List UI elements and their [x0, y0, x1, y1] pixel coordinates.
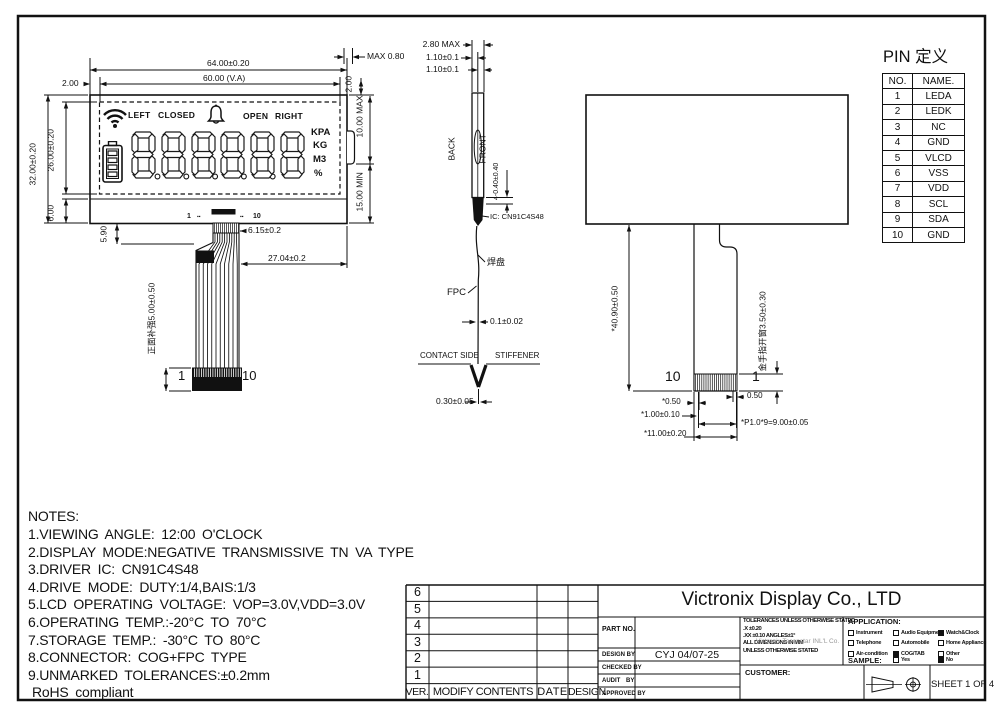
note-line: 6.OPERATING TEMP.:-20°C TO 70°C	[28, 615, 266, 629]
dim-front-fpc-offset: 27.04±0.2	[268, 254, 306, 263]
dim-front-left-offset: 2.00	[62, 79, 79, 88]
rev-header-date: DATE	[537, 687, 568, 698]
table-row: 5VLCD	[883, 150, 965, 165]
sheet-number: SHEET 1 OF 4	[931, 680, 985, 690]
checkbox-icon	[848, 630, 854, 636]
lcd-unit-kpa: KPA	[311, 128, 330, 138]
dim-front-va-height: 26.00±0.20	[47, 129, 56, 171]
back-pin1: 1	[752, 369, 760, 383]
pin-no: 3	[883, 120, 913, 135]
table-row: 9SDA	[883, 212, 965, 227]
pin-name: SDA	[913, 212, 965, 227]
checked-by-label: CHECKED BY	[602, 665, 642, 671]
lcd-unit-m3: M3	[313, 155, 326, 165]
seven-segment-digit	[220, 131, 245, 179]
checkbox-icon	[938, 630, 944, 636]
pin-name: LEDA	[913, 89, 965, 104]
pin-no: 6	[883, 166, 913, 181]
seven-segment-digit	[191, 131, 216, 179]
note-line: 2.DISPLAY MODE:NEGATIVE TRANSMISSIVE TN …	[28, 545, 414, 559]
checkbox-icon	[848, 640, 854, 646]
application-label: APPLICATION:	[848, 618, 901, 626]
rev-row-4: 4	[406, 619, 429, 632]
front-pinrow-1: 1	[187, 213, 191, 220]
dim-front-height: 32.00±0.20	[29, 143, 38, 185]
note-line: 8.CONNECTOR: COG+FPC TYPE	[28, 650, 247, 664]
pin-name: GND	[913, 227, 965, 242]
table-row: 8SCL	[883, 197, 965, 212]
pin-name: LEDK	[913, 104, 965, 119]
rev-row-3: 3	[406, 636, 429, 649]
seven-segment-digit	[280, 131, 305, 179]
front-tail-pin10: 10	[242, 369, 256, 382]
front-pinrow-10: 10	[253, 213, 261, 220]
tolerance-line: UNLESS OTHERWISE STATED	[743, 649, 818, 655]
dim-back-050a: *0.50	[662, 398, 681, 406]
dim-back-window: 金手指开窗3.50±0.30	[759, 291, 768, 371]
seven-segment-digit	[131, 131, 156, 179]
dim-front-max10: 10.00 MAX	[356, 95, 365, 137]
seven-segment-digit	[250, 131, 275, 179]
dim-front-va-width: 60.00 (V.A)	[203, 74, 245, 83]
lcd-label-left: LEFT	[128, 111, 150, 120]
table-row: 7VDD	[883, 181, 965, 196]
side-label-contact: CONTACT SIDE	[420, 352, 479, 360]
dim-back-pitch: *P1.0*9=9.00±0.05	[741, 419, 808, 427]
dim-front-bottom-strip: 6.00	[47, 205, 56, 222]
lcd-label-open: OPEN	[243, 112, 268, 121]
table-row: 6VSS	[883, 166, 965, 181]
side-label-back: BACK	[448, 137, 457, 160]
side-label-pad: 焊盘	[487, 258, 505, 267]
pin-name: VLCD	[913, 150, 965, 165]
note-rohs: RoHS compliant	[32, 685, 133, 699]
pin-name: SCL	[913, 197, 965, 212]
checkbox-icon	[893, 640, 899, 646]
pin-name: NC	[913, 120, 965, 135]
part-no-label: PART NO.	[602, 626, 635, 633]
design-by-label: DESIGN BY	[602, 652, 635, 658]
wifi-icon	[101, 105, 129, 129]
lcd-label-right: RIGHT	[275, 112, 303, 121]
dim-side-01: 0.1±0.02	[490, 317, 523, 326]
tolerance-line: TOLERANCES UNLESS OTHERWISE STATED	[743, 619, 855, 625]
side-label-fpc: FPC	[447, 288, 466, 298]
app-checkbox-watchclock: Watch&Clock	[938, 630, 979, 636]
app-checkbox-automobile: Automobile	[893, 640, 929, 646]
dim-back-050b: 0.50	[747, 392, 763, 400]
dim-front-right-offset: 2.00	[345, 76, 354, 93]
dim-side-030: 0.30±0.05	[436, 397, 474, 406]
rev-row-1: 1	[406, 669, 429, 682]
rev-header-modify: MODIFY CONTENTS	[429, 687, 537, 698]
tolerance-line: .X ±0.20	[743, 627, 761, 633]
bell-icon	[206, 103, 226, 126]
dim-back-100: *1.00±0.10	[641, 411, 680, 419]
side-label-stiffener: STIFFENER	[495, 352, 539, 360]
audit-by-label: AUDIT BY	[602, 678, 634, 684]
pin-no: 9	[883, 212, 913, 227]
checkbox-icon	[893, 657, 899, 663]
dim-front-stiffener-note: 正面补强5.00±0.50	[148, 283, 157, 355]
watermark: Victronix Tecenstar INL'L Co.	[756, 639, 839, 646]
pin-no: 4	[883, 135, 913, 150]
dim-front-min15: 15.00 MIN	[356, 172, 365, 211]
dim-side-040: 4-0.40±0.40	[493, 163, 500, 200]
lcd-label-closed: CLOSED	[158, 111, 195, 120]
dim-back-taillen: *40.90±0.50	[611, 286, 620, 332]
app-checkbox-home: Home Appliance	[938, 640, 986, 646]
company-title: Victronix Display Co., LTD	[598, 590, 985, 609]
approved-by-label: APPROVED BY	[602, 691, 646, 697]
rev-row-6: 6	[406, 586, 429, 599]
front-tail-pin1: 1	[178, 369, 185, 382]
note-line: 3.DRIVER IC: CN91C4S48	[28, 562, 198, 576]
pin-no: 10	[883, 227, 913, 242]
app-checkbox-audio: Audio Equipment	[893, 630, 944, 636]
back-pin10: 10	[665, 369, 681, 383]
app-checkbox-telephone: Telephone	[848, 640, 881, 646]
sample-no: No	[938, 657, 953, 663]
sample-label: SAMPLE:	[848, 657, 882, 665]
lcd-unit-kg: KG	[313, 141, 327, 151]
table-row: 10GND	[883, 227, 965, 242]
side-label-ic: IC: CN91C4S48	[490, 213, 544, 221]
pin-no: 8	[883, 197, 913, 212]
pin-name: VSS	[913, 166, 965, 181]
note-line: 4.DRIVE MODE: DUTY:1/4,BAIS:1/3	[28, 580, 256, 594]
dim-side-110b: 1.10±0.1	[423, 65, 459, 74]
dim-front-width: 64.00±0.20	[207, 59, 249, 68]
side-label-front: FRONT	[479, 134, 488, 163]
pin-no: 7	[883, 181, 913, 196]
seven-segment-digit	[161, 131, 186, 179]
customer-label: CUSTOMER:	[745, 669, 790, 677]
dim-front-neck: 5.90	[100, 226, 109, 243]
battery-icon	[102, 141, 123, 184]
rev-header-ver: VER.	[405, 687, 429, 698]
rev-row-5: 5	[406, 603, 429, 616]
checkbox-icon	[893, 630, 899, 636]
pin-name: VDD	[913, 181, 965, 196]
design-by-value: CYJ 04/07-25	[637, 650, 737, 661]
note-line: 1.VIEWING ANGLE: 12:00 O'CLOCK	[28, 527, 262, 541]
notes-title: NOTES:	[28, 509, 79, 523]
table-row: 3NC	[883, 120, 965, 135]
rev-header-design: DESIGN	[568, 687, 598, 698]
table-row: 4GND	[883, 135, 965, 150]
pin-table-title: PIN 定义	[883, 49, 948, 66]
pin-table: NO.NAME. 1LEDA 2LEDK 3NC 4GND 5VLCD 6VSS…	[882, 73, 965, 243]
pin-name: GND	[913, 135, 965, 150]
checkbox-icon	[938, 640, 944, 646]
dim-side-110a: 1.10±0.1	[423, 53, 459, 62]
front-pinrow-dots-right: ▪▪	[240, 215, 244, 220]
note-line: 7.STORAGE TEMP.: -30°C TO 80°C	[28, 633, 260, 647]
lcd-unit-percent: %	[314, 169, 322, 179]
note-line: 5.LCD OPERATING VOLTAGE: VOP=3.0V,VDD=3.…	[28, 597, 365, 611]
pin-no: 2	[883, 104, 913, 119]
sample-yes: Yes	[893, 657, 910, 663]
seven-segment-digits	[131, 131, 305, 179]
dim-side-280: 2.80 MAX	[417, 40, 460, 49]
table-row: 2LEDK	[883, 104, 965, 119]
dim-front-max080: MAX 0.80	[367, 52, 404, 61]
checkbox-icon	[938, 657, 944, 663]
pin-col-no: NO.	[883, 74, 913, 89]
rev-row-2: 2	[406, 652, 429, 665]
pin-col-name: NAME.	[913, 74, 965, 89]
app-checkbox-instrument: Instrument	[848, 630, 882, 636]
table-row: 1LEDA	[883, 89, 965, 104]
front-pinrow-dots-left: ▪▪	[197, 215, 201, 220]
pin-no: 5	[883, 150, 913, 165]
engineering-drawing-sheet: LEFT CLOSED OPEN RIGHT KPA KG M3 % 64.00…	[0, 0, 1000, 719]
pin-no: 1	[883, 89, 913, 104]
dim-front-stub: 6.15±0.2	[248, 226, 281, 235]
note-line: 9.UNMARKED TOLERANCES:±0.2mm	[28, 668, 270, 682]
dim-back-1100: *11.00±0.20	[644, 430, 687, 438]
